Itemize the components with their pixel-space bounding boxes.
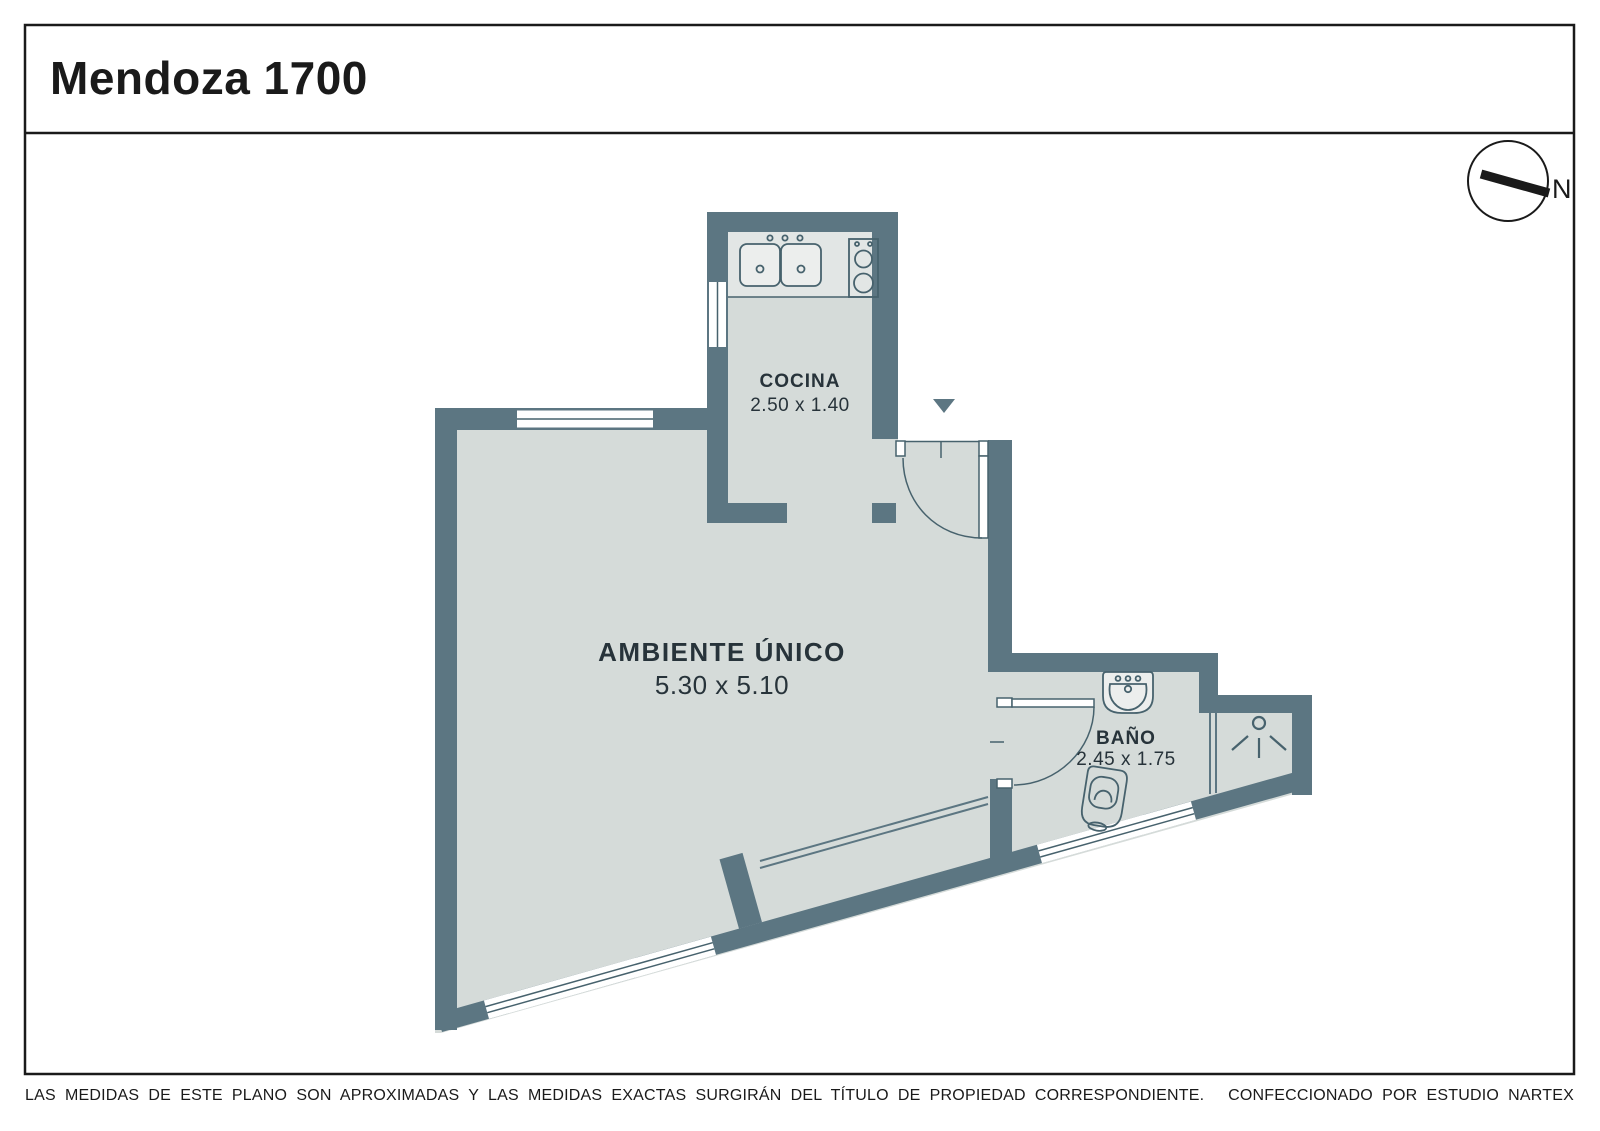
compass: N [1468,141,1572,221]
entry-jamb-left [896,441,905,456]
window-kitchen-left [709,282,726,347]
bath-door-leaf [1012,699,1094,707]
compass-label: N [1552,174,1572,204]
window-main-top [517,411,653,428]
floor-plan-page: Mendoza 1700 N [0,0,1600,1131]
footer-credit: CONFECCIONADO POR ESTUDIO NARTEX [1228,1087,1574,1104]
wall-entry-right [988,440,1012,672]
bath-jamb-bottom [997,779,1012,788]
bath-sink [1103,672,1153,713]
wall-kitchen-left [707,212,728,523]
bath-jamb-top [997,698,1012,707]
room-dims-kitchen: 2.50 x 1.40 [750,395,850,416]
wall-kitchen-bottom [707,503,787,523]
wall-bath-right [1199,653,1218,713]
wall-bath-top [990,653,1218,672]
entry-jamb-right [979,441,988,456]
wall-left [435,408,457,1030]
wall-kitchen-top [707,212,898,232]
wall-kitchen-right [872,212,898,439]
room-label-main: AMBIENTE ÚNICO [598,637,846,667]
entrance-marker [933,399,955,413]
floor-plan: Mendoza 1700 N [0,0,1600,1131]
entry-door-leaf [979,456,988,538]
room-label-bath: BAÑO [1096,727,1156,749]
page-title: Mendoza 1700 [50,52,368,104]
room-dims-main: 5.30 x 5.10 [655,670,789,700]
wall-kitchen-stub [872,503,896,523]
room-label-kitchen: COCINA [760,371,841,392]
footer-disclaimer: LAS MEDIDAS DE ESTE PLANO SON APROXIMADA… [25,1085,1204,1104]
room-dims-bath: 2.45 x 1.75 [1076,749,1176,770]
